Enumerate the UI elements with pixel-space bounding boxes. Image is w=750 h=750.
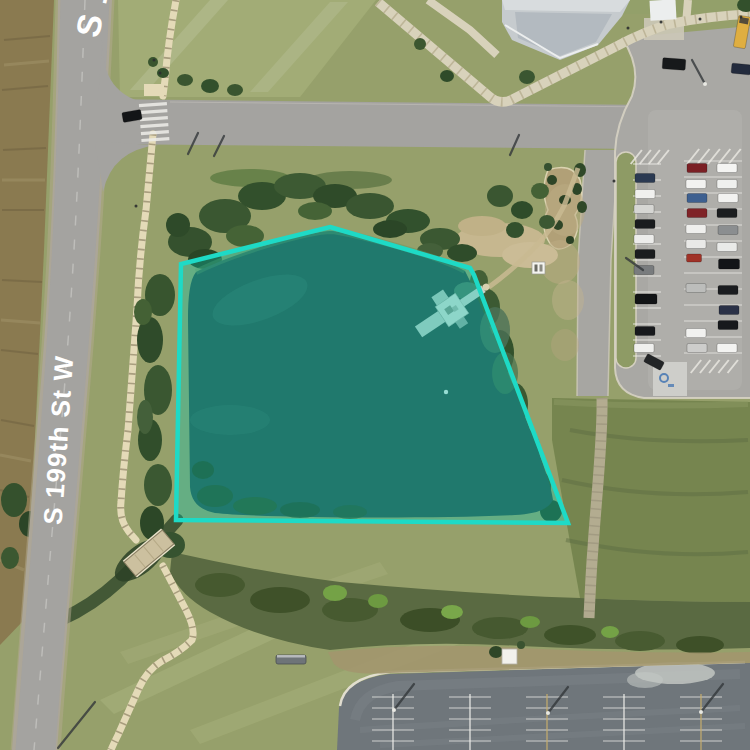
path-landing [144,84,164,96]
satellite-map[interactable]: S 199th St W S 199th St W [0,0,750,750]
sign-kiosk [532,262,545,274]
parking-lot-bottom [337,662,750,750]
satellite-imagery [0,0,750,750]
shed [502,649,517,664]
